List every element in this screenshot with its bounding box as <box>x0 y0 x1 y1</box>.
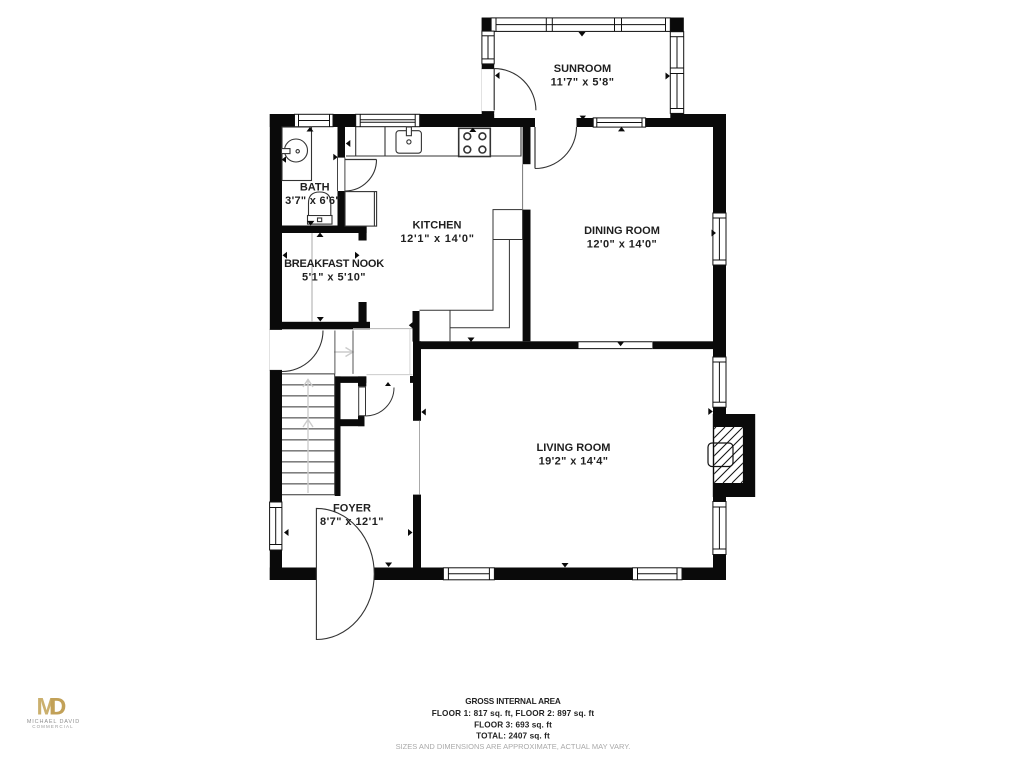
svg-text:19'2" x 14'4": 19'2" x 14'4" <box>539 455 609 467</box>
svg-text:KITCHEN: KITCHEN <box>413 220 462 232</box>
svg-text:TOTAL: 2407 sq. ft: TOTAL: 2407 sq. ft <box>476 732 550 741</box>
svg-text:8'7" x 12'1": 8'7" x 12'1" <box>320 516 384 528</box>
svg-text:5'1" x 5'10": 5'1" x 5'10" <box>302 271 366 283</box>
svg-text:GROSS INTERNAL AREA: GROSS INTERNAL AREA <box>465 697 561 706</box>
svg-text:FOYER: FOYER <box>333 503 371 515</box>
svg-text:COMMERCIAL: COMMERCIAL <box>32 724 74 729</box>
svg-text:FLOOR 3: 693 sq. ft: FLOOR 3: 693 sq. ft <box>474 720 552 729</box>
svg-text:D: D <box>49 694 66 721</box>
svg-text:11'7" x 5'8": 11'7" x 5'8" <box>551 76 615 88</box>
svg-text:12'0" x 14'0": 12'0" x 14'0" <box>587 238 657 250</box>
svg-text:SUNROOM: SUNROOM <box>554 63 611 75</box>
svg-text:3'7" x 6'6": 3'7" x 6'6" <box>285 195 341 207</box>
svg-text:DINING ROOM: DINING ROOM <box>584 225 660 237</box>
svg-text:LIVING ROOM: LIVING ROOM <box>537 442 611 454</box>
svg-text:12'1" x 14'0": 12'1" x 14'0" <box>400 233 474 245</box>
svg-text:SIZES AND DIMENSIONS ARE APPRO: SIZES AND DIMENSIONS ARE APPROXIMATE, AC… <box>396 742 631 751</box>
svg-text:FLOOR 1: 817 sq. ft, FLOOR 2:: FLOOR 1: 817 sq. ft, FLOOR 2: 897 sq. ft <box>432 709 595 718</box>
svg-text:BATH: BATH <box>300 182 330 194</box>
svg-text:BREAKFAST NOOK: BREAKFAST NOOK <box>284 258 384 270</box>
